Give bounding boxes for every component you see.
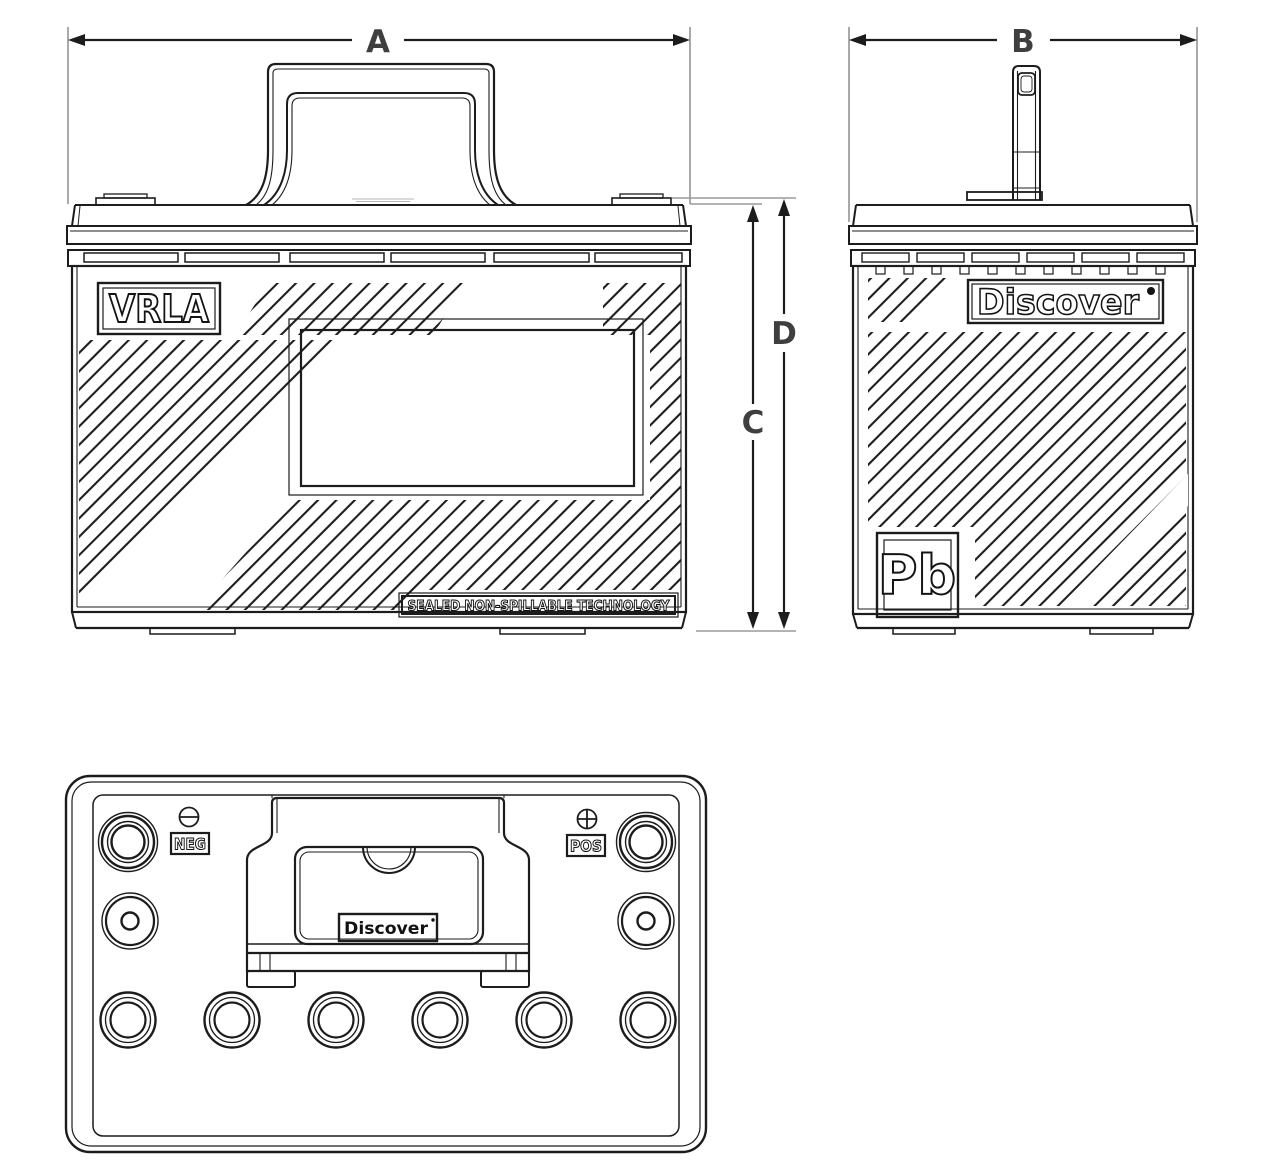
side-lid — [849, 205, 1197, 274]
discover-badge-top: Discover — [339, 914, 437, 941]
discover-label-top: Discover — [344, 919, 429, 939]
front-handle — [246, 64, 516, 205]
cell-cap — [205, 993, 260, 1048]
registered-dot-icon — [431, 918, 434, 921]
front-case: VRLA SEALED NON-SPILLABLE TECHNOLOGY — [72, 266, 686, 617]
cell-cap — [309, 993, 364, 1048]
front-hatch-pattern — [79, 283, 681, 610]
dimension-a-label: A — [366, 24, 390, 60]
registered-dot-icon — [1147, 287, 1155, 295]
pb-badge: Pb — [877, 533, 958, 617]
vrla-badge: VRLA — [98, 283, 220, 334]
sealed-label: SEALED NON-SPILLABLE TECHNOLOGY — [408, 599, 670, 615]
front-terminal-bump-left — [104, 194, 147, 198]
arrowhead-left-icon — [849, 34, 866, 46]
cell-cap — [101, 993, 156, 1048]
technical-drawing-canvas: A — [0, 0, 1268, 1172]
dimension-a: A — [68, 24, 690, 204]
top-view: NEG POS — [66, 776, 706, 1152]
side-view: B — [849, 24, 1197, 634]
cell-cap — [517, 993, 572, 1048]
neg-label: NEG — [174, 835, 206, 854]
top-handle: Discover — [247, 795, 529, 987]
side-case: Discover Pb — [853, 266, 1193, 617]
arrowhead-up-icon — [778, 199, 790, 216]
dimension-c: C — [690, 204, 764, 629]
pos-badge: POS — [567, 835, 605, 856]
front-view: A — [67, 24, 691, 634]
dimension-c-label: C — [742, 405, 765, 441]
front-label-panel — [289, 319, 643, 495]
cell-cap — [621, 993, 676, 1048]
arrowhead-up-icon — [747, 205, 759, 222]
discover-badge-side: Discover — [968, 280, 1163, 323]
dimension-b-label: B — [1011, 24, 1035, 60]
vrla-label: VRLA — [109, 287, 210, 331]
arrowhead-down-icon — [747, 612, 759, 629]
arrowhead-down-icon — [778, 612, 790, 629]
vent-port-right — [618, 893, 674, 949]
positive-terminal-icon — [578, 810, 597, 829]
pos-label: POS — [570, 837, 602, 856]
arrowhead-right-icon — [1180, 34, 1197, 46]
vent-port-left — [102, 893, 158, 949]
negative-terminal — [99, 813, 158, 872]
battery-dimension-drawing: A — [0, 0, 1268, 1172]
positive-terminal — [617, 813, 676, 872]
cell-caps-row — [101, 993, 676, 1048]
sealed-technology-badge: SEALED NON-SPILLABLE TECHNOLOGY — [399, 593, 678, 617]
negative-terminal-icon — [180, 808, 199, 827]
front-base — [72, 612, 686, 634]
discover-label-side: Discover — [977, 283, 1140, 323]
cell-cap — [413, 993, 468, 1048]
pb-label: Pb — [878, 544, 956, 607]
dimension-d-label: D — [771, 316, 797, 352]
arrowhead-right-icon — [673, 34, 690, 46]
front-lid — [67, 194, 691, 266]
side-lid-tabs — [876, 266, 1165, 274]
arrowhead-left-icon — [68, 34, 85, 46]
front-terminal-bump-right — [620, 194, 663, 198]
neg-badge: NEG — [171, 833, 209, 854]
side-handle — [967, 66, 1042, 200]
